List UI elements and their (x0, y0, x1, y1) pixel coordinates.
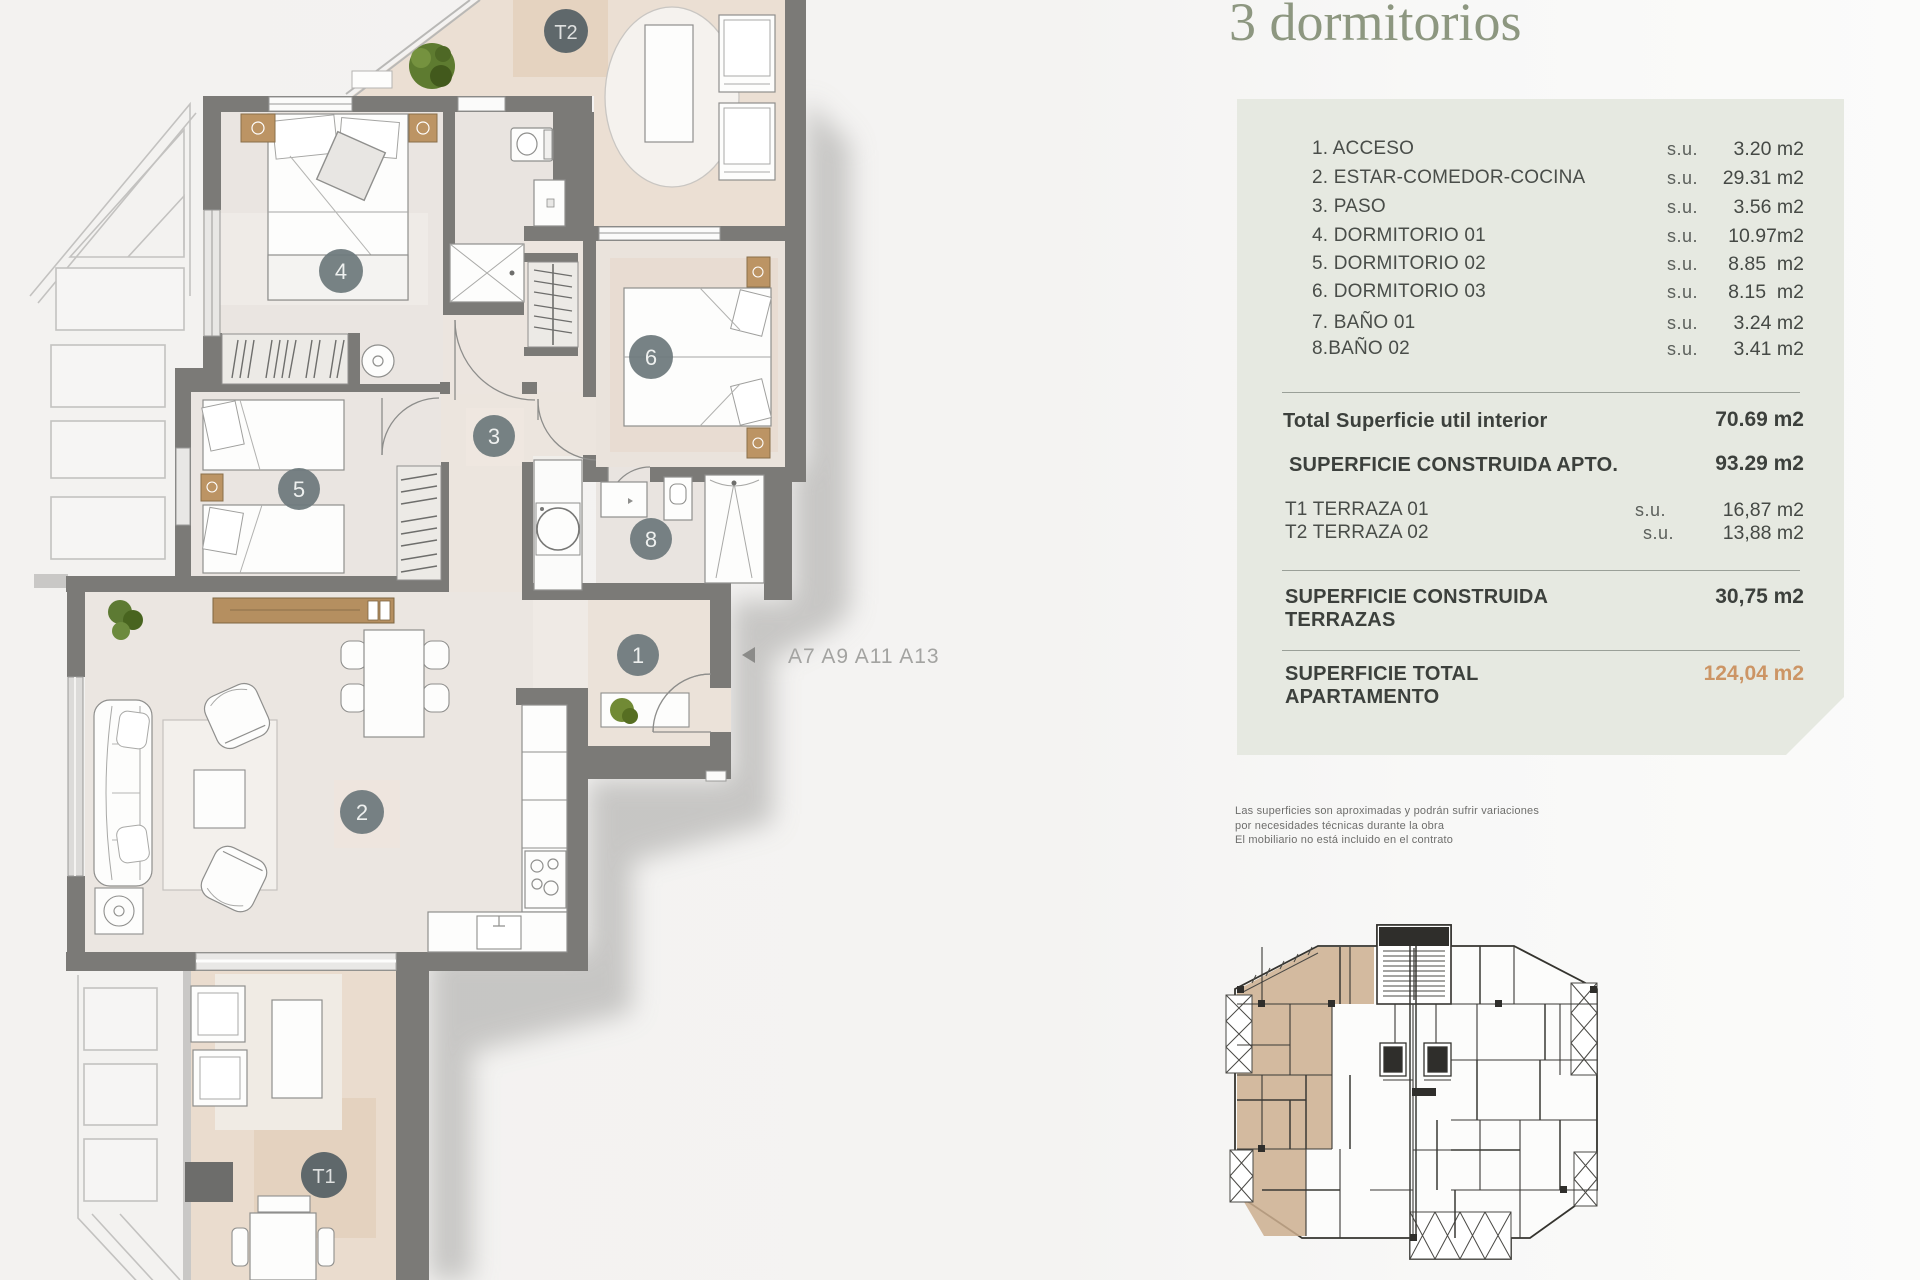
svg-text:2: 2 (356, 800, 368, 825)
svg-text:4: 4 (335, 259, 347, 284)
svg-text:3: 3 (488, 424, 500, 449)
svg-text:A7 A9 A11 A13: A7 A9 A11 A13 (788, 645, 940, 668)
svg-text:T2: T2 (554, 22, 577, 44)
svg-text:8: 8 (645, 527, 657, 552)
svg-text:6: 6 (645, 345, 657, 370)
svg-text:1: 1 (632, 643, 644, 668)
svg-text:5: 5 (293, 477, 305, 502)
svg-text:T1: T1 (312, 1166, 335, 1188)
